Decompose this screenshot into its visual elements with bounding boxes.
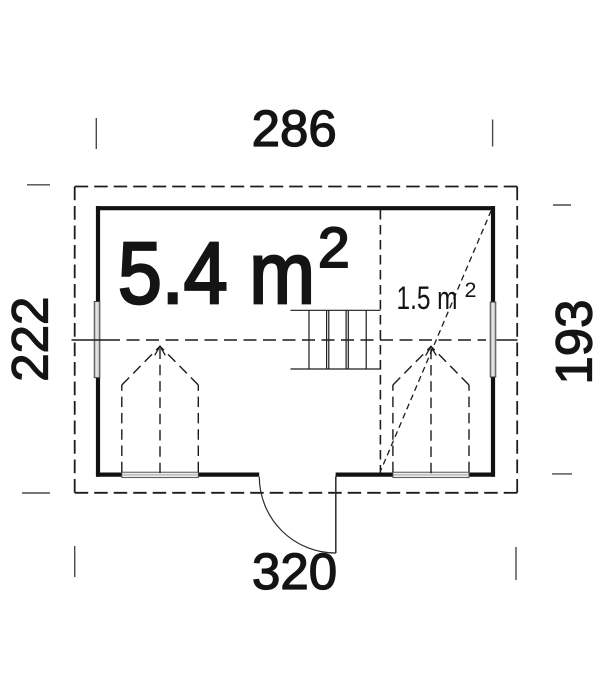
svg-text:5.4 m: 5.4 m — [118, 225, 315, 322]
svg-text:320: 320 — [252, 543, 337, 600]
svg-text:1.5 m: 1.5 m — [397, 280, 458, 316]
svg-text:222: 222 — [2, 297, 59, 382]
svg-text:286: 286 — [252, 100, 337, 157]
svg-text:193: 193 — [546, 300, 600, 385]
svg-text:2: 2 — [465, 278, 477, 302]
svg-text:2: 2 — [318, 216, 350, 280]
